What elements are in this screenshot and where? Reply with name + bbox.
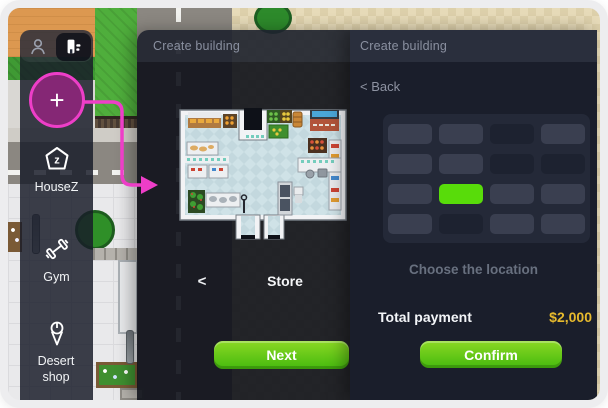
total-payment-value: $2,000 [549, 309, 592, 325]
add-building-button[interactable]: + [29, 72, 85, 128]
map-building [118, 260, 138, 334]
tab-buildings-selected[interactable] [56, 33, 91, 61]
person-icon [27, 35, 49, 57]
total-payment-row: Total payment $2,000 [378, 308, 592, 326]
grid-cell-selected[interactable] [439, 184, 483, 204]
store-floorplan-image [178, 104, 348, 244]
building-name: Store [245, 273, 325, 289]
grid-cell[interactable] [388, 184, 432, 204]
total-payment-label: Total payment [378, 309, 472, 325]
map-stone-fence [93, 248, 137, 260]
confirm-button-label: Confirm [464, 347, 518, 363]
sidebar-item-label: Desert shop [26, 354, 86, 385]
next-button-label: Next [266, 347, 296, 363]
sidebar-item-gym[interactable]: Gym [20, 234, 93, 286]
grid-cell[interactable] [388, 154, 432, 174]
app-window: + z HouseZ Gym Desert sh [0, 0, 608, 408]
grid-cell[interactable] [439, 124, 483, 144]
plus-icon: + [49, 87, 64, 113]
tab-people[interactable] [20, 30, 56, 62]
ice-cream-icon [42, 318, 72, 348]
choose-location-hint: Choose the location [350, 262, 597, 277]
grid-cell[interactable] [541, 154, 585, 174]
grid-cell[interactable] [541, 214, 585, 234]
sidebar-tab-bar [20, 30, 93, 62]
grid-cell[interactable] [490, 154, 534, 174]
map-lamp-post [126, 330, 134, 364]
tutorial-arrow [78, 94, 170, 204]
grid-cell[interactable] [541, 124, 585, 144]
grid-cell[interactable] [388, 124, 432, 144]
grid-cell[interactable] [490, 184, 534, 204]
location-grid [383, 114, 590, 243]
grid-cell[interactable] [388, 214, 432, 234]
confirm-button[interactable]: Confirm [420, 341, 562, 368]
grid-cell[interactable] [439, 154, 483, 174]
house-z-icon: z [42, 144, 72, 174]
back-chevron-button[interactable]: < [192, 272, 212, 292]
grid-cell[interactable] [490, 214, 534, 234]
dumbbell-icon [42, 234, 72, 264]
panel-header: Create building [350, 30, 597, 62]
grid-cell[interactable] [541, 184, 585, 204]
buildings-icon [63, 36, 85, 58]
panel-header: Create building [137, 30, 350, 62]
grid-cell[interactable] [490, 124, 534, 144]
next-button[interactable]: Next [214, 341, 349, 369]
sidebar-item-label: Gym [20, 270, 93, 286]
back-button[interactable]: < Back [360, 79, 400, 94]
sidebar-item-desert-shop[interactable]: Desert shop [20, 318, 93, 385]
map-flower-bed [96, 362, 138, 388]
svg-text:z: z [54, 155, 60, 167]
grid-cell[interactable] [439, 214, 483, 234]
